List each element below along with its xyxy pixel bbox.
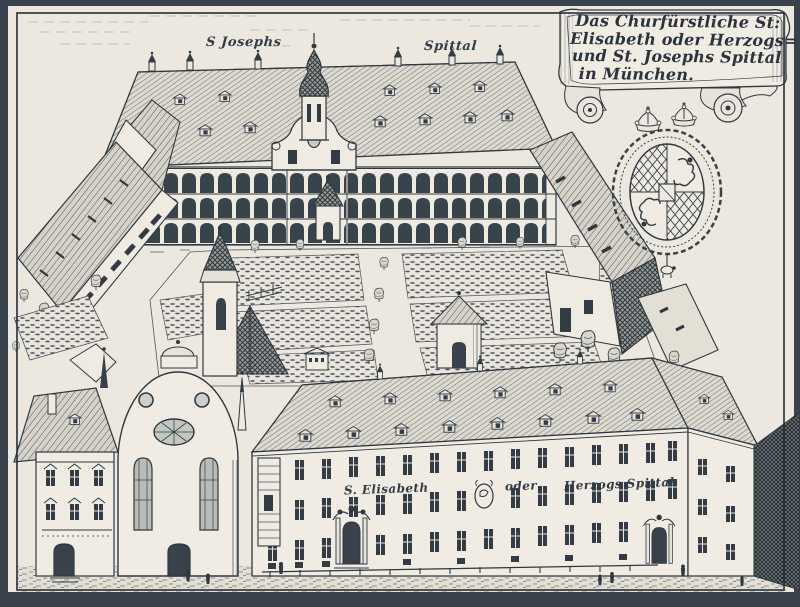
oculus-window	[139, 393, 153, 407]
engraving-plate: S Josephs Spittal Das Churfürstliche St:…	[0, 0, 800, 607]
townhouse-door	[54, 544, 74, 576]
engraving-scene	[0, 0, 800, 607]
corner-bay	[258, 458, 280, 546]
front-building	[252, 349, 800, 590]
church-window	[134, 458, 152, 530]
title-banner: Das Churfürstliche St: Elisabeth oder He…	[570, 12, 785, 84]
church-window	[200, 458, 218, 530]
oculus-window	[195, 393, 209, 407]
banner-line-4: in München.	[579, 64, 784, 84]
